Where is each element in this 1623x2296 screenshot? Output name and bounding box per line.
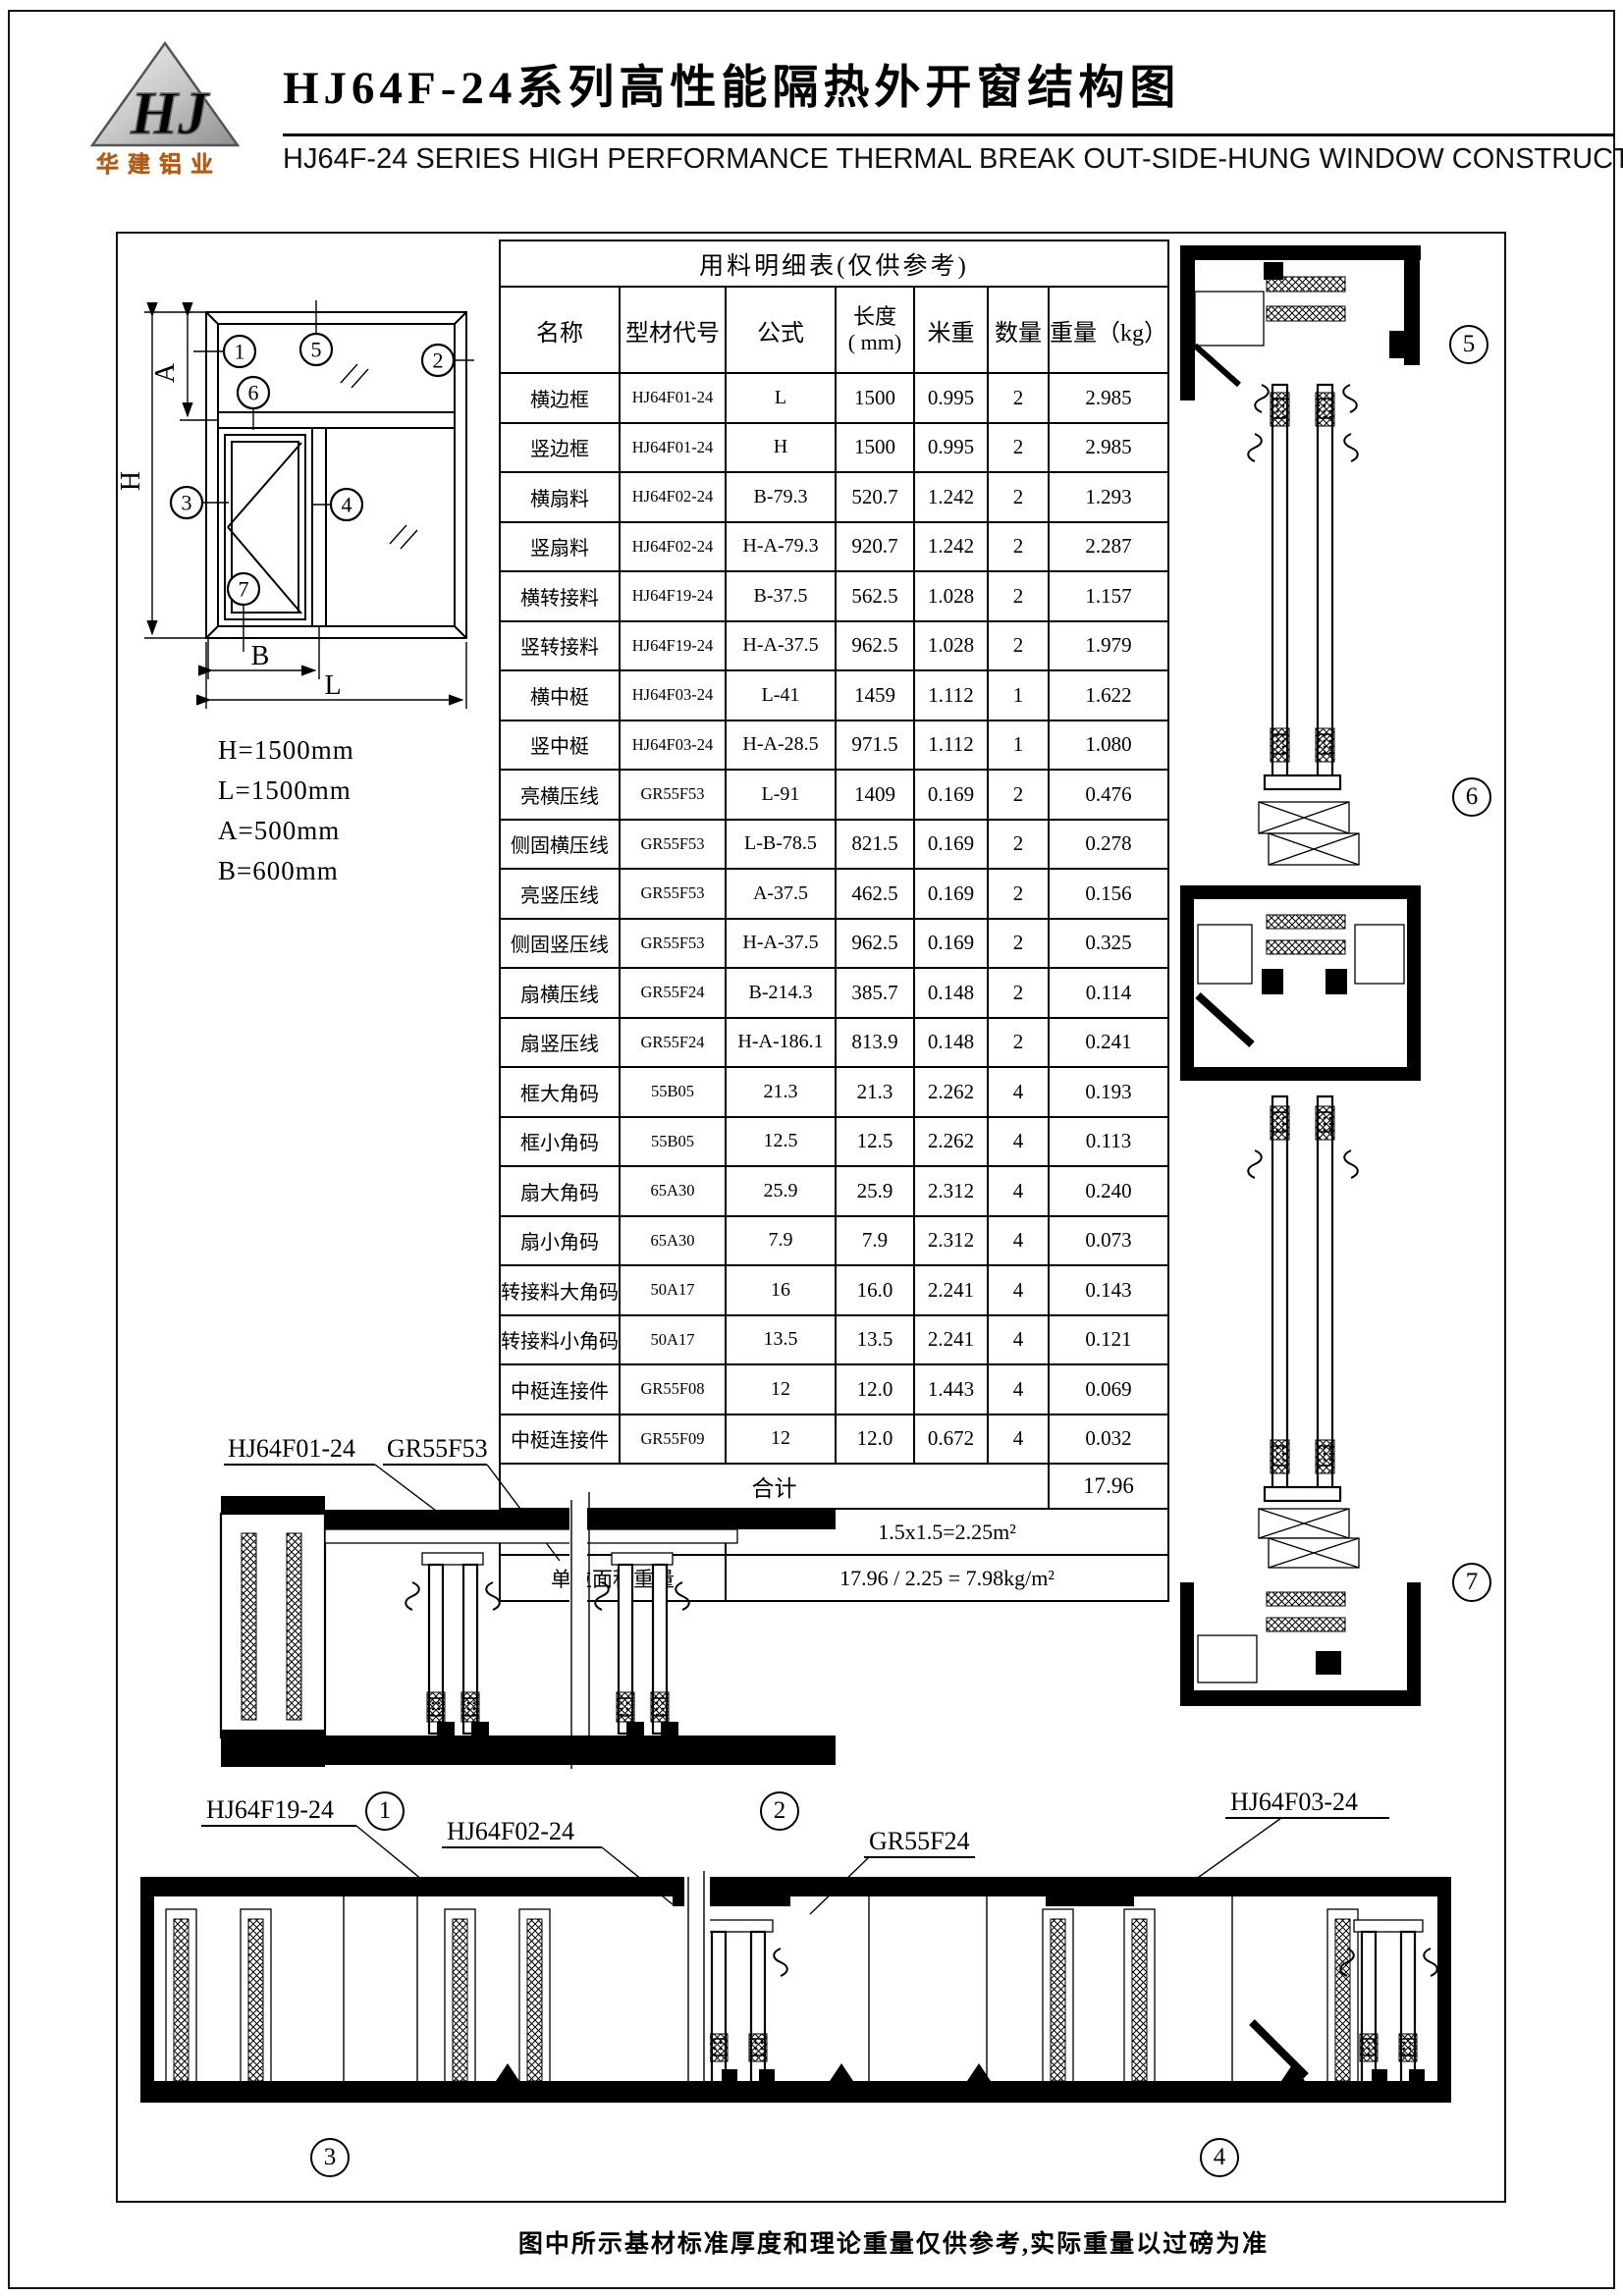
cell-qty: 1	[988, 670, 1049, 721]
cell-length: 962.5	[836, 919, 914, 969]
cell-meter-weight: 0.995	[914, 423, 988, 473]
dim-label-l: L	[324, 670, 341, 701]
cell-name: 扇小角码	[500, 1216, 620, 1266]
cell-code: HJ64F01-24	[620, 373, 726, 423]
callout-2: 2	[422, 345, 454, 376]
table-row: 中梃连接件 GR55F08 12 12.0 1.443 4 0.069	[500, 1364, 1168, 1415]
svg-text:3: 3	[182, 491, 192, 515]
cell-length: 1500	[836, 373, 914, 423]
cell-name: 侧固竖压线	[500, 919, 620, 969]
cell-weight: 2.287	[1049, 522, 1168, 572]
cell-code: 65A30	[620, 1166, 726, 1216]
cell-code: HJ64F02-24	[620, 522, 726, 572]
cell-formula: H-A-37.5	[726, 919, 836, 969]
cell-weight: 1.293	[1049, 472, 1168, 522]
cell-name: 横边框	[500, 373, 620, 423]
dim-label-b: B	[251, 641, 270, 671]
cell-formula: A-37.5	[726, 869, 836, 919]
section-1-2-drawing: HJ64F01-24 GR55F53	[147, 1435, 854, 1789]
cell-name: 转接料小角码	[500, 1315, 620, 1365]
cell-meter-weight: 1.443	[914, 1364, 988, 1415]
cell-qty: 4	[988, 1117, 1049, 1167]
cell-formula: H-A-37.5	[726, 621, 836, 671]
cell-qty: 2	[988, 472, 1049, 522]
cell-name: 竖转接料	[500, 621, 620, 671]
cell-qty: 2	[988, 571, 1049, 621]
cell-qty: 2	[988, 968, 1049, 1018]
cell-weight: 0.069	[1049, 1364, 1168, 1415]
col-weight: 重量（kg）	[1049, 287, 1168, 373]
cell-name: 竖边框	[500, 423, 620, 473]
cell-formula: 7.9	[726, 1216, 836, 1266]
cell-meter-weight: 0.995	[914, 373, 988, 423]
cell-weight: 0.156	[1049, 869, 1168, 919]
table-row: 亮竖压线 GR55F53 A-37.5 462.5 0.169 2 0.156	[500, 869, 1168, 919]
callout-4-bottom: 4	[1200, 2138, 1239, 2177]
cell-meter-weight: 2.241	[914, 1315, 988, 1365]
cell-meter-weight: 1.242	[914, 472, 988, 522]
cell-length: 1409	[836, 770, 914, 820]
table-row: 侧固横压线 GR55F53 L-B-78.5 821.5 0.169 2 0.2…	[500, 820, 1168, 870]
cell-meter-weight: 2.241	[914, 1265, 988, 1315]
dimension-notes: H=1500mm L=1500mm A=500mm B=600mm	[218, 730, 354, 891]
col-name: 名称	[500, 287, 620, 373]
svg-text:7: 7	[239, 577, 249, 602]
cell-length: 920.7	[836, 522, 914, 572]
cell-meter-weight: 1.112	[914, 721, 988, 771]
table-header-row: 名称 型材代号 公式 长度 ( mm) 米重 数量 重量（kg）	[500, 287, 1168, 373]
cell-qty: 4	[988, 1415, 1049, 1465]
cell-weight: 1.157	[1049, 571, 1168, 621]
cell-meter-weight: 0.672	[914, 1415, 988, 1465]
svg-text:HJ: HJ	[130, 80, 210, 147]
cell-length: 12.0	[836, 1364, 914, 1415]
cell-code: GR55F53	[620, 869, 726, 919]
cell-qty: 2	[988, 919, 1049, 969]
cell-meter-weight: 0.169	[914, 869, 988, 919]
profile-label-hj64f01: HJ64F01-24	[228, 1434, 355, 1463]
cell-weight: 0.325	[1049, 919, 1168, 969]
cell-weight: 0.241	[1049, 1018, 1168, 1068]
callout-2-bottom: 2	[760, 1791, 799, 1831]
cell-length: 821.5	[836, 820, 914, 870]
materials-rows: 横边框 HJ64F01-24 L 1500 0.995 2 2.985 竖边框 …	[500, 373, 1168, 1464]
cell-name: 侧固横压线	[500, 820, 620, 870]
cell-qty: 4	[988, 1315, 1049, 1365]
cell-meter-weight: 0.148	[914, 1018, 988, 1068]
cell-qty: 2	[988, 423, 1049, 473]
cell-name: 横转接料	[500, 571, 620, 621]
table-row: 框大角码 55B05 21.3 21.3 2.262 4 0.193	[500, 1067, 1168, 1117]
cell-length: 520.7	[836, 472, 914, 522]
svg-text:5: 5	[311, 338, 322, 362]
table-row: 亮横压线 GR55F53 L-91 1409 0.169 2 0.476	[500, 770, 1168, 820]
callout-6-right: 6	[1452, 777, 1491, 817]
cell-formula: 16	[726, 1265, 836, 1315]
callout-7-right: 7	[1452, 1563, 1491, 1602]
cell-weight: 0.073	[1049, 1216, 1168, 1266]
drawing-sheet: HJ 华建铝业 HJ64F-24系列高性能隔热外开窗结构图 HJ64F-24 S…	[0, 0, 1623, 2296]
cell-code: 50A17	[620, 1265, 726, 1315]
table-row: 竖转接料 HJ64F19-24 H-A-37.5 962.5 1.028 2 1…	[500, 621, 1168, 671]
cell-formula: 25.9	[726, 1166, 836, 1216]
cell-length: 813.9	[836, 1018, 914, 1068]
cell-code: 50A17	[620, 1315, 726, 1365]
dim-note-b: B=600mm	[218, 851, 354, 891]
cell-length: 13.5	[836, 1315, 914, 1365]
dim-label-a: A	[150, 362, 181, 383]
cell-length: 971.5	[836, 721, 914, 771]
cell-qty: 1	[988, 721, 1049, 771]
table-row: 侧固竖压线 GR55F53 H-A-37.5 962.5 0.169 2 0.3…	[500, 919, 1168, 969]
cell-code: GR55F53	[620, 770, 726, 820]
callout-5-right: 5	[1449, 325, 1488, 364]
dim-note-a: A=500mm	[218, 811, 354, 851]
cell-meter-weight: 1.028	[914, 571, 988, 621]
svg-text:4: 4	[342, 493, 352, 517]
table-row: 竖边框 HJ64F01-24 H 1500 0.995 2 2.985	[500, 423, 1168, 473]
cell-name: 扇竖压线	[500, 1018, 620, 1068]
cell-formula: L-91	[726, 770, 836, 820]
cell-weight: 0.240	[1049, 1166, 1168, 1216]
cell-code: GR55F24	[620, 1018, 726, 1068]
cell-length: 7.9	[836, 1216, 914, 1266]
table-row: 扇大角码 65A30 25.9 25.9 2.312 4 0.240	[500, 1166, 1168, 1216]
profile-label-hj64f03: HJ64F03-24	[1230, 1788, 1358, 1816]
cell-length: 21.3	[836, 1067, 914, 1117]
cell-meter-weight: 1.242	[914, 522, 988, 572]
materials-table: 用料明细表(仅供参考) 名称 型材代号 公式 长度 ( mm) 米重 数量 重量…	[499, 240, 1169, 1602]
cell-qty: 4	[988, 1364, 1049, 1415]
cell-weight: 1.080	[1049, 721, 1168, 771]
cell-length: 1459	[836, 670, 914, 721]
cell-formula: H	[726, 423, 836, 473]
cell-meter-weight: 0.169	[914, 770, 988, 820]
table-row: 扇小角码 65A30 7.9 7.9 2.312 4 0.073	[500, 1216, 1168, 1266]
vertical-section-drawing	[1168, 238, 1463, 1715]
cell-name: 框小角码	[500, 1117, 620, 1167]
cell-name: 扇横压线	[500, 968, 620, 1018]
cell-weight: 0.476	[1049, 770, 1168, 820]
cell-qty: 2	[988, 820, 1049, 870]
table-row: 横中梃 HJ64F03-24 L-41 1459 1.112 1 1.622	[500, 670, 1168, 721]
cell-meter-weight: 0.169	[914, 919, 988, 969]
cell-weight: 0.113	[1049, 1117, 1168, 1167]
cell-length: 16.0	[836, 1265, 914, 1315]
cell-name: 亮横压线	[500, 770, 620, 820]
cell-meter-weight: 2.312	[914, 1216, 988, 1266]
profile-label-gr55f24: GR55F24	[869, 1827, 970, 1855]
callout-3-bottom: 3	[310, 2138, 350, 2177]
cell-code: GR55F53	[620, 919, 726, 969]
svg-text:1: 1	[235, 340, 245, 364]
callout-7: 7	[228, 573, 259, 605]
profile-label-hj64f02: HJ64F02-24	[447, 1817, 574, 1845]
cell-qty: 2	[988, 869, 1049, 919]
cell-formula: B-79.3	[726, 472, 836, 522]
cell-name: 竖中梃	[500, 721, 620, 771]
cell-qty: 4	[988, 1166, 1049, 1216]
cell-code: HJ64F01-24	[620, 423, 726, 473]
footer-note: 图中所示基材标准厚度和理论重量仅供参考,实际重量以过磅为准	[422, 2224, 1365, 2260]
page-subtitle: HJ64F-24 SERIES HIGH PERFORMANCE THERMAL…	[283, 143, 1623, 176]
table-row: 横转接料 HJ64F19-24 B-37.5 562.5 1.028 2 1.1…	[500, 571, 1168, 621]
table-row: 转接料小角码 50A17 13.5 13.5 2.241 4 0.121	[500, 1315, 1168, 1365]
cell-weight: 0.193	[1049, 1067, 1168, 1117]
company-name: 华建铝业	[61, 145, 257, 179]
cell-name: 横中梃	[500, 670, 620, 721]
callout-3: 3	[171, 487, 202, 518]
cell-qty: 2	[988, 621, 1049, 671]
cell-length: 25.9	[836, 1166, 914, 1216]
cell-code: 65A30	[620, 1216, 726, 1266]
cell-formula: H-A-186.1	[726, 1018, 836, 1068]
cell-weight: 1.979	[1049, 621, 1168, 671]
cell-weight: 0.143	[1049, 1265, 1168, 1315]
dim-label-h: H	[116, 471, 146, 491]
callout-1: 1	[224, 336, 255, 367]
dim-note-l: L=1500mm	[218, 771, 354, 811]
svg-text:6: 6	[248, 381, 259, 405]
cell-qty: 4	[988, 1067, 1049, 1117]
dim-note-h: H=1500mm	[218, 730, 354, 771]
cell-weight: 0.032	[1049, 1415, 1168, 1465]
cell-code: 55B05	[620, 1117, 726, 1167]
callout-4: 4	[331, 489, 362, 520]
cell-code: HJ64F19-24	[620, 621, 726, 671]
cell-length: 562.5	[836, 571, 914, 621]
cell-formula: 21.3	[726, 1067, 836, 1117]
cell-code: HJ64F02-24	[620, 472, 726, 522]
cell-meter-weight: 0.169	[914, 820, 988, 870]
callout-6: 6	[238, 377, 269, 408]
cell-qty: 4	[988, 1265, 1049, 1315]
cell-code: GR55F08	[620, 1364, 726, 1415]
cell-name: 横扇料	[500, 472, 620, 522]
cell-code: GR55F24	[620, 968, 726, 1018]
cell-length: 12.5	[836, 1117, 914, 1167]
cell-formula: L-B-78.5	[726, 820, 836, 870]
cell-meter-weight: 1.112	[914, 670, 988, 721]
cell-code: HJ64F03-24	[620, 670, 726, 721]
table-row: 转接料大角码 50A17 16 16.0 2.241 4 0.143	[500, 1265, 1168, 1315]
section-3-4-drawing: HJ64F19-24 HJ64F02-24 GR55F24 HJ64F03-24	[123, 1787, 1497, 2164]
cell-length: 385.7	[836, 968, 914, 1018]
table-row: 竖扇料 HJ64F02-24 H-A-79.3 920.7 1.242 2 2.…	[500, 522, 1168, 572]
cell-formula: H-A-79.3	[726, 522, 836, 572]
cell-formula: 12.5	[726, 1117, 836, 1167]
col-meter-weight: 米重	[914, 287, 988, 373]
table-row: 横扇料 HJ64F02-24 B-79.3 520.7 1.242 2 1.29…	[500, 472, 1168, 522]
glazing-mark-icon	[341, 364, 417, 549]
page-title: HJ64F-24系列高性能隔热外开窗结构图	[283, 49, 1180, 117]
cell-qty: 2	[988, 1018, 1049, 1068]
cell-formula: B-37.5	[726, 571, 836, 621]
cell-meter-weight: 0.148	[914, 968, 988, 1018]
cell-code: GR55F53	[620, 820, 726, 870]
cell-code: HJ64F19-24	[620, 571, 726, 621]
callout-1-bottom: 1	[365, 1791, 405, 1831]
cell-formula: H-A-28.5	[726, 721, 836, 771]
cell-qty: 2	[988, 522, 1049, 572]
cell-qty: 4	[988, 1216, 1049, 1266]
table-title: 用料明细表(仅供参考)	[500, 240, 1168, 287]
cell-code: 55B05	[620, 1067, 726, 1117]
cell-qty: 2	[988, 373, 1049, 423]
cell-weight: 2.985	[1049, 423, 1168, 473]
cell-meter-weight: 2.262	[914, 1067, 988, 1117]
cell-qty: 2	[988, 770, 1049, 820]
profile-label-gr55f53: GR55F53	[387, 1434, 488, 1463]
table-row: 扇竖压线 GR55F24 H-A-186.1 813.9 0.148 2 0.2…	[500, 1018, 1168, 1068]
elevation-drawing: H A B L 1 5 2	[123, 285, 476, 726]
cell-meter-weight: 2.262	[914, 1117, 988, 1167]
cell-weight: 0.114	[1049, 968, 1168, 1018]
svg-text:2: 2	[433, 348, 444, 373]
cell-name: 扇大角码	[500, 1166, 620, 1216]
cell-formula: 13.5	[726, 1315, 836, 1365]
cell-meter-weight: 2.312	[914, 1166, 988, 1216]
cell-formula: 12	[726, 1364, 836, 1415]
cell-length: 1500	[836, 423, 914, 473]
title-divider	[283, 133, 1615, 136]
cell-name: 竖扇料	[500, 522, 620, 572]
total-value: 17.96	[1049, 1464, 1168, 1509]
cell-formula: L-41	[726, 670, 836, 721]
cell-name: 中梃连接件	[500, 1364, 620, 1415]
cell-formula: B-214.3	[726, 968, 836, 1018]
cell-name: 亮竖压线	[500, 869, 620, 919]
table-row: 横边框 HJ64F01-24 L 1500 0.995 2 2.985	[500, 373, 1168, 423]
cell-code: HJ64F03-24	[620, 721, 726, 771]
table-row: 框小角码 55B05 12.5 12.5 2.262 4 0.113	[500, 1117, 1168, 1167]
cell-length: 462.5	[836, 869, 914, 919]
cell-meter-weight: 1.028	[914, 621, 988, 671]
col-formula: 公式	[726, 287, 836, 373]
col-qty: 数量	[988, 287, 1049, 373]
cell-name: 转接料大角码	[500, 1265, 620, 1315]
cell-weight: 1.622	[1049, 670, 1168, 721]
callout-5: 5	[300, 334, 332, 365]
table-row: 扇横压线 GR55F24 B-214.3 385.7 0.148 2 0.114	[500, 968, 1168, 1018]
cell-name: 框大角码	[500, 1067, 620, 1117]
cell-weight: 0.121	[1049, 1315, 1168, 1365]
cell-weight: 0.278	[1049, 820, 1168, 870]
col-length: 长度 ( mm)	[836, 287, 914, 373]
col-code: 型材代号	[620, 287, 726, 373]
cell-formula: L	[726, 373, 836, 423]
table-row: 竖中梃 HJ64F03-24 H-A-28.5 971.5 1.112 1 1.…	[500, 721, 1168, 771]
company-logo-icon: HJ	[75, 39, 243, 149]
cell-weight: 2.985	[1049, 373, 1168, 423]
profile-label-hj64f19: HJ64F19-24	[206, 1795, 334, 1824]
cell-length: 962.5	[836, 621, 914, 671]
